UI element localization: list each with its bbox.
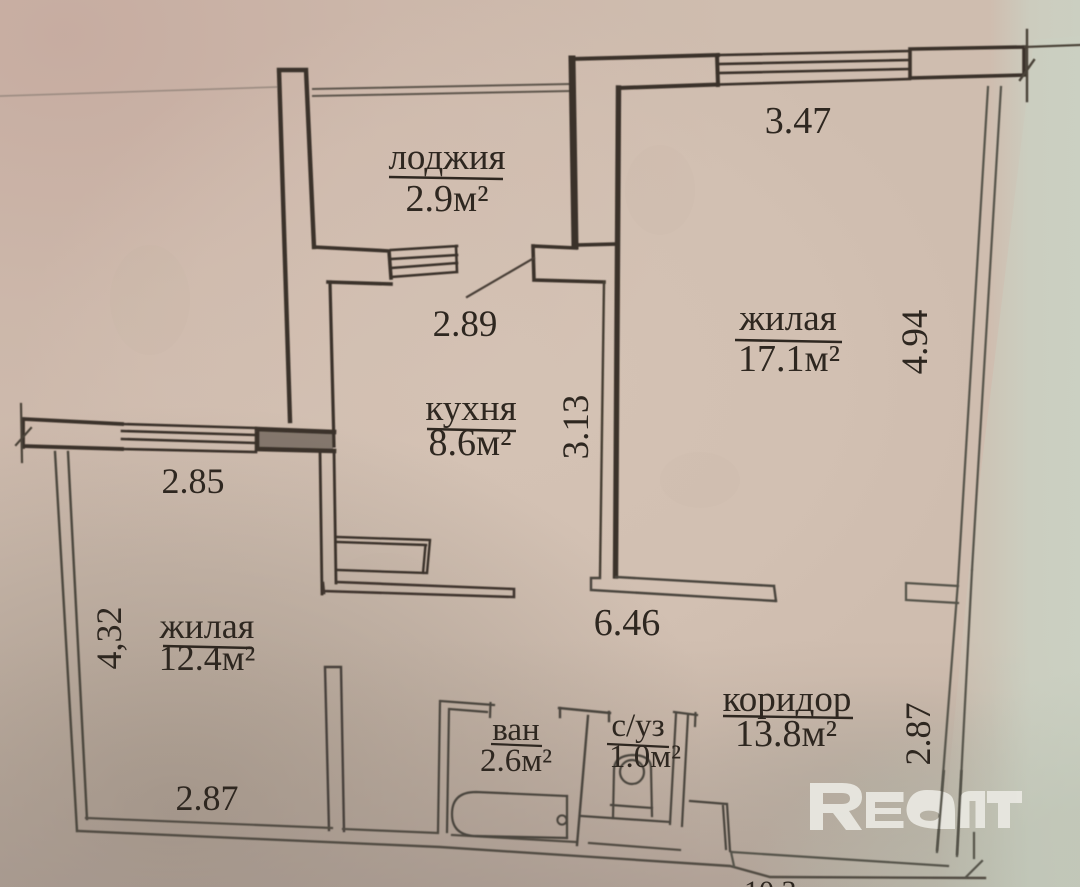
svg-text:8.6м²: 8.6м² [429,422,512,464]
svg-text:2.87: 2.87 [176,778,239,818]
svg-text:лоджия: лоджия [388,137,505,178]
svg-text:1.0м²: 1.0м² [609,739,681,775]
svg-text:4,32: 4,32 [89,607,129,670]
svg-text:6.46: 6.46 [594,602,661,644]
svg-text:2.9м²: 2.9м² [406,178,489,220]
svg-text:10.3: 10.3 [744,875,797,887]
svg-text:2.6м²: 2.6м² [480,743,552,779]
svg-text:3.13: 3.13 [556,395,597,460]
svg-text:3.47: 3.47 [765,100,832,142]
svg-text:2.89: 2.89 [433,304,498,345]
svg-text:13.8м²: 13.8м² [735,713,837,755]
svg-text:2.87: 2.87 [898,703,938,766]
svg-text:2.85: 2.85 [162,461,225,501]
svg-text:17.1м²: 17.1м² [738,338,840,380]
svg-text:4.94: 4.94 [895,310,936,375]
svg-text:жилая: жилая [738,298,836,339]
svg-text:12.4м²: 12.4м² [159,638,256,678]
